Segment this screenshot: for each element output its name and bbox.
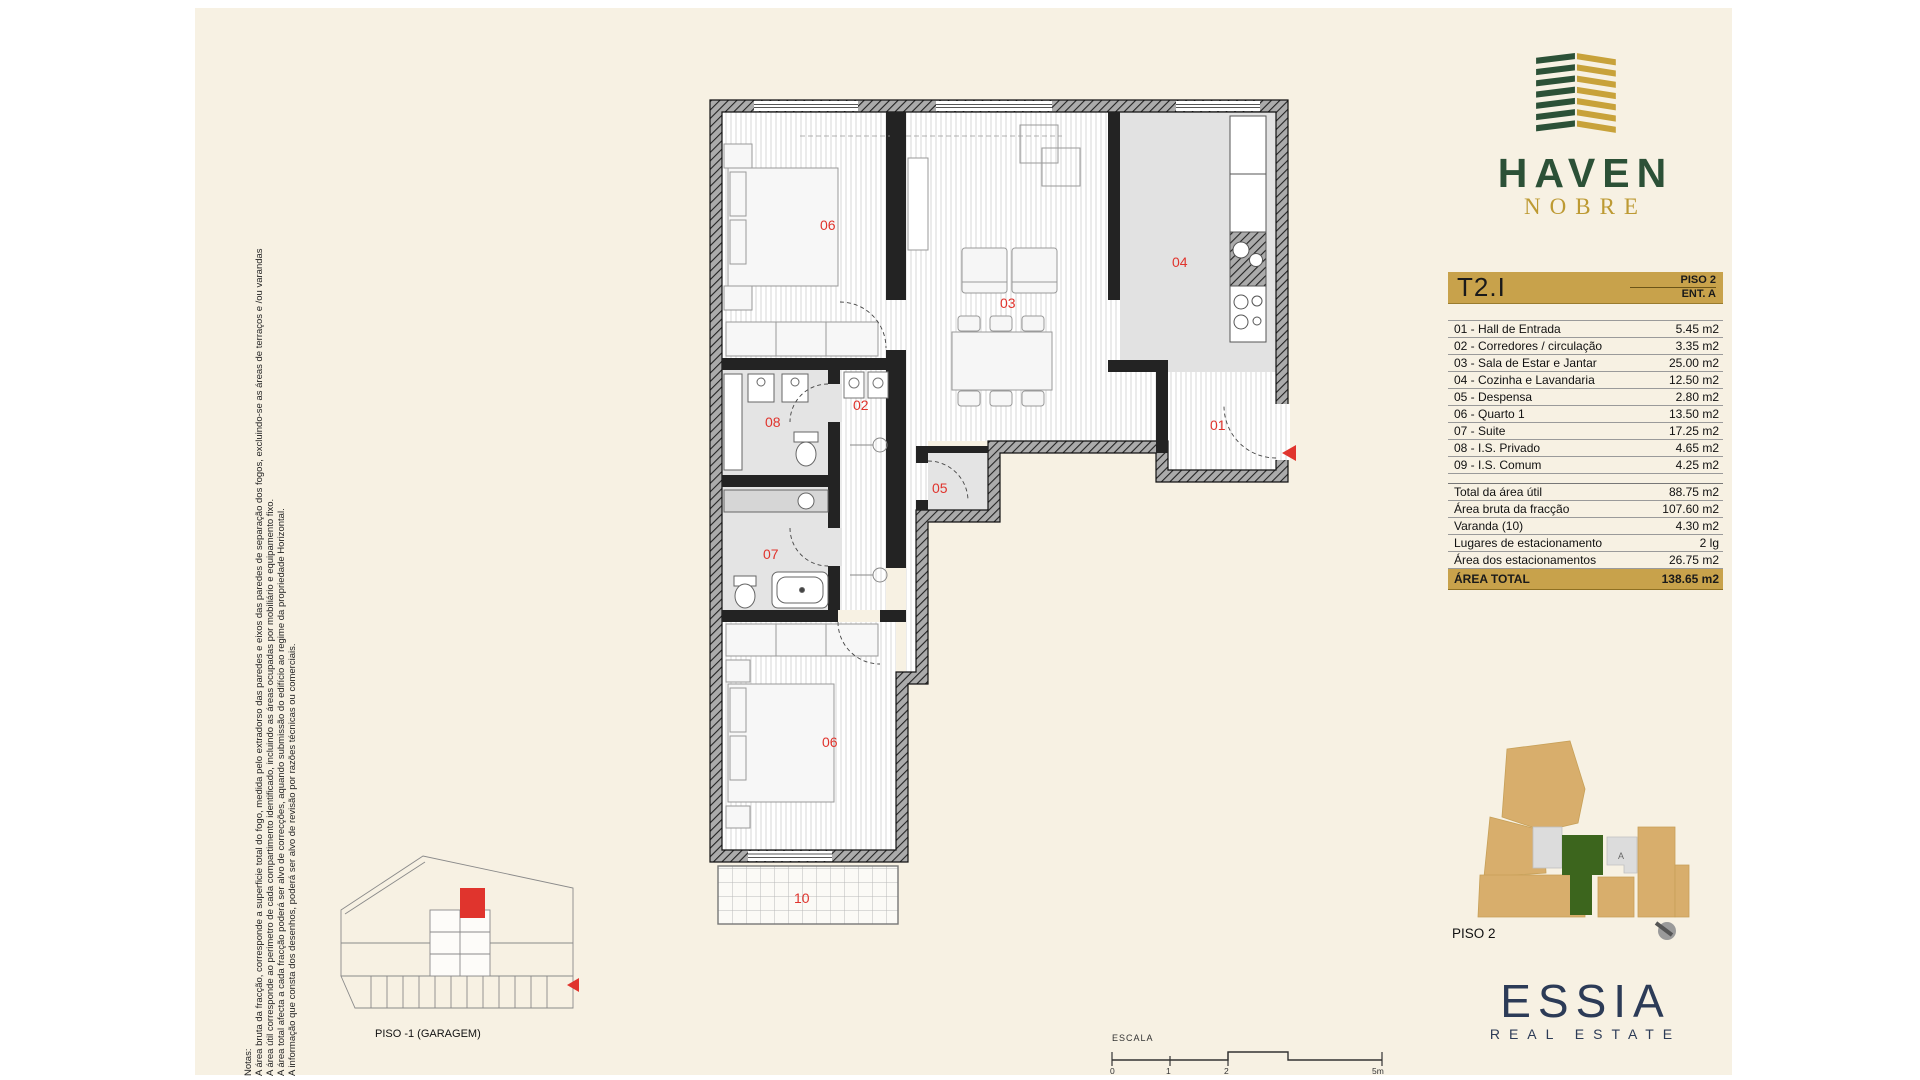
north-arrow-icon xyxy=(1656,922,1676,940)
room-label-suite: 06 xyxy=(822,734,838,750)
unit-entrance: ENT. A xyxy=(1630,287,1716,301)
table-row: Total da área útil88.75 m2 xyxy=(1448,483,1723,501)
unit-floor: PISO 2 xyxy=(1681,274,1716,286)
area-total-label: ÁREA TOTAL xyxy=(1454,572,1530,586)
room-label-kitchen: 04 xyxy=(1172,254,1188,270)
notes-block: Notas: A área bruta da fracção, correspo… xyxy=(243,56,298,1076)
brand-name: HAVEN xyxy=(1448,150,1723,197)
area-total-value: 138.65 m2 xyxy=(1662,572,1719,586)
room-label-wc-private: 08 xyxy=(765,414,781,430)
totals-table: Total da área útil88.75 m2 Área bruta da… xyxy=(1448,483,1723,569)
table-row: 06 - Quarto 113.50 m2 xyxy=(1448,406,1723,423)
site-key-plan: A xyxy=(1452,737,1692,942)
room-pantry-floor xyxy=(928,446,988,510)
note-line: A área útil corresponde ao perimetro de … xyxy=(265,56,276,1076)
table-row: 09 - I.S. Comum4.25 m2 xyxy=(1448,457,1723,474)
unit-code: T2.I xyxy=(1457,272,1506,303)
room-label-wc-suite: 07 xyxy=(763,546,779,562)
site-plan-entrance-letter: A xyxy=(1618,851,1624,861)
room-label-bedroom1: 06 xyxy=(820,217,836,233)
site-plan-floor-label: PISO 2 xyxy=(1452,926,1496,941)
note-line: A informação que consta dos desenhos, po… xyxy=(287,56,298,1076)
footer-brand-name: ESSIA xyxy=(1448,974,1723,1028)
table-row: Área dos estacionamentos26.75 m2 xyxy=(1448,552,1723,569)
table-row: 08 - I.S. Privado4.65 m2 xyxy=(1448,440,1723,457)
notes-title: Notas: xyxy=(243,56,254,1076)
table-row: Varanda (10)4.30 m2 xyxy=(1448,518,1723,535)
table-row: Área bruta da fracção107.60 m2 xyxy=(1448,501,1723,518)
scale-tick-2: 2 xyxy=(1224,1066,1229,1076)
table-row: 07 - Suite17.25 m2 xyxy=(1448,423,1723,440)
table-row: 05 - Despensa2.80 m2 xyxy=(1448,389,1723,406)
table-row: 04 - Cozinha e Lavandaria12.50 m2 xyxy=(1448,372,1723,389)
room-label-balcony: 10 xyxy=(794,890,810,906)
table-row: 02 - Corredores / circulação3.35 m2 xyxy=(1448,338,1723,355)
highlighted-parking-space xyxy=(460,888,485,918)
rooms-table: 01 - Hall de Entrada5.45 m2 02 - Corredo… xyxy=(1448,320,1723,474)
note-line: A área bruta da fracção, corresponde a s… xyxy=(254,56,265,1076)
table-row: Lugares de estacionamento2 lg xyxy=(1448,535,1723,552)
haven-logo-icon xyxy=(1532,48,1624,140)
scale-bar: 0 1 2 5m xyxy=(1110,1042,1400,1076)
footer-brand-tagline: REAL ESTATE xyxy=(1448,1026,1723,1042)
brand-subname: NOBRE xyxy=(1448,194,1723,220)
table-row: 03 - Sala de Estar e Jantar25.00 m2 xyxy=(1448,355,1723,372)
room-label-pantry: 05 xyxy=(932,480,948,496)
garage-plan xyxy=(335,848,595,1048)
room-label-hall: 01 xyxy=(1210,417,1226,433)
area-total-bar: ÁREA TOTAL 138.65 m2 xyxy=(1448,569,1723,590)
table-row: 01 - Hall de Entrada5.45 m2 xyxy=(1448,320,1723,338)
garage-plan-label: PISO -1 (GARAGEM) xyxy=(375,1028,481,1040)
note-line: A área total afecta a cada fracção poder… xyxy=(276,56,287,1076)
room-label-corridor: 02 xyxy=(853,397,869,413)
unit-header-bar: T2.I PISO 2 ENT. A xyxy=(1448,272,1723,304)
scale-tick-0: 0 xyxy=(1110,1066,1115,1076)
room-label-living: 03 xyxy=(1000,295,1016,311)
floor-plan: 06 03 04 01 02 08 05 07 06 10 xyxy=(690,70,1310,950)
scale-tick-5m: 5m xyxy=(1372,1066,1384,1076)
scale-tick-1: 1 xyxy=(1166,1066,1171,1076)
kitchen-counter xyxy=(1230,116,1266,342)
